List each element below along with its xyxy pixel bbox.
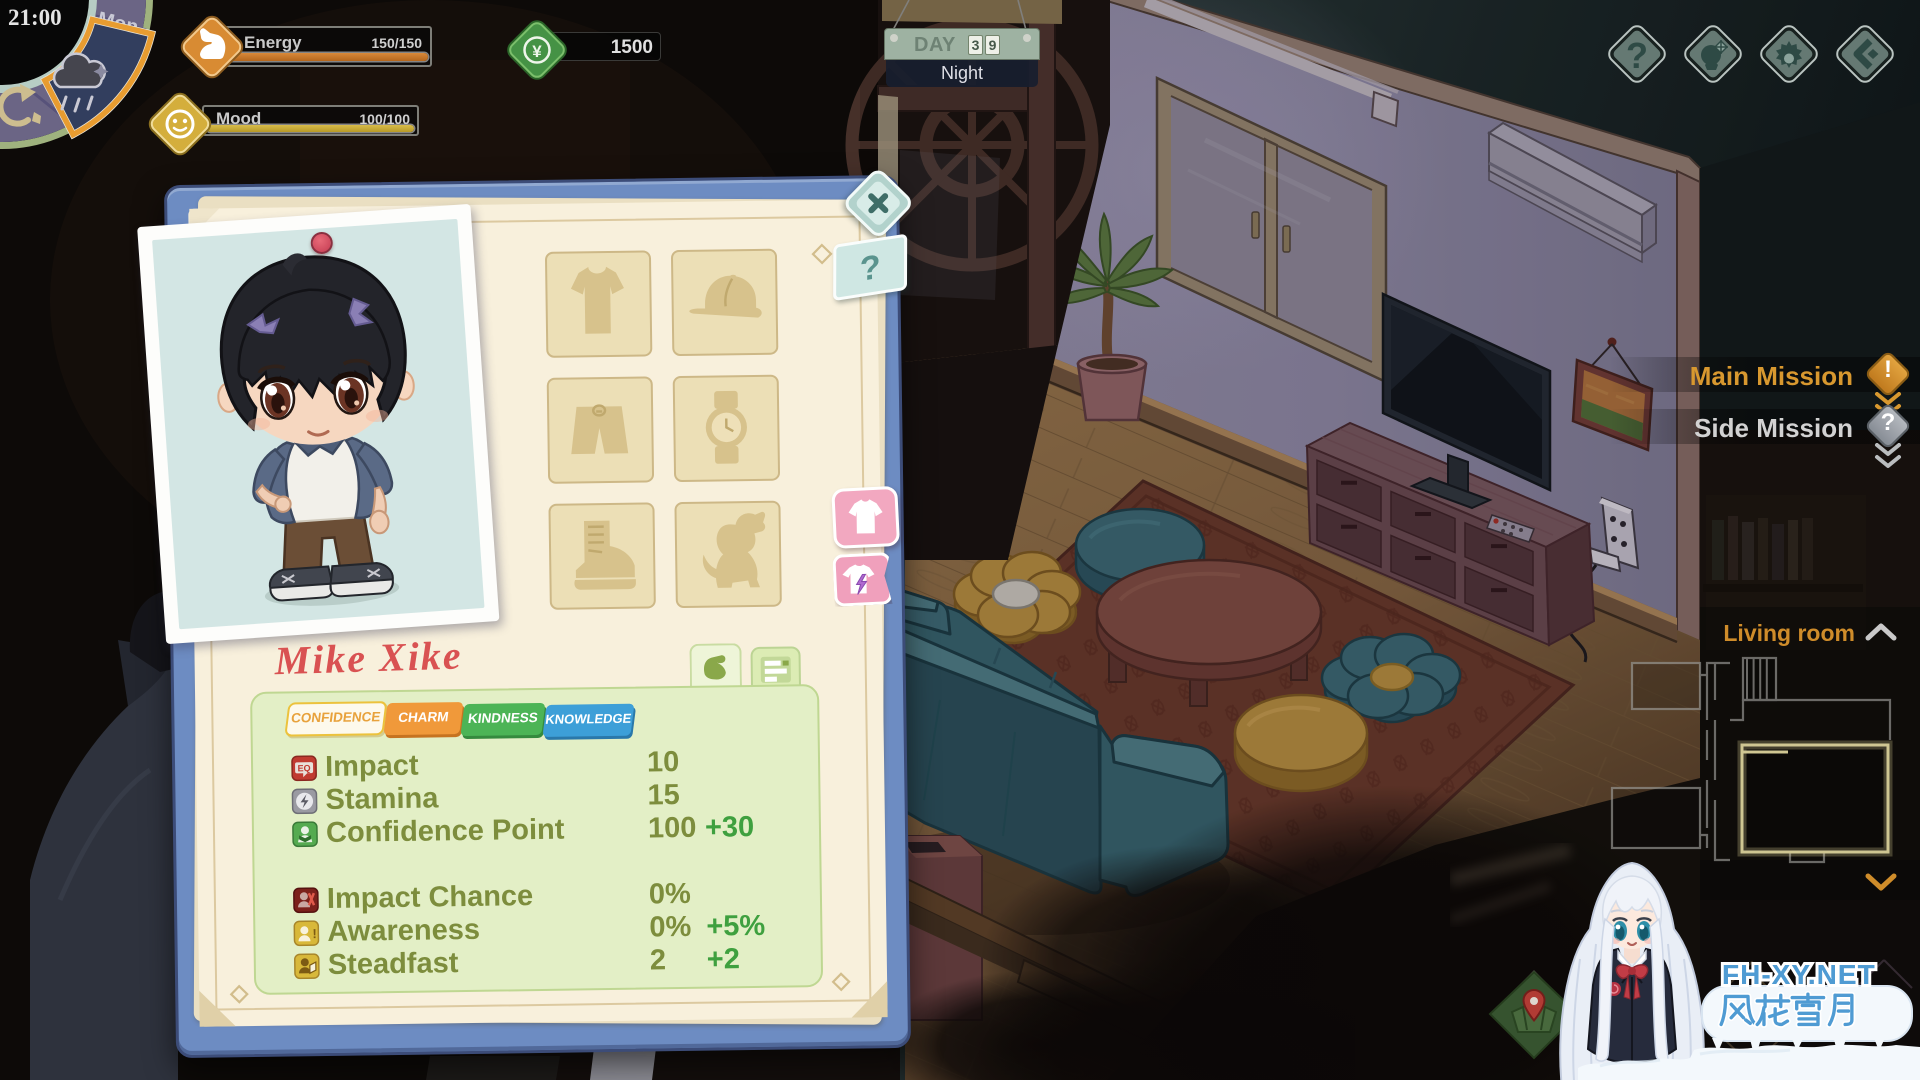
svg-text:FH-XY.NET: FH-XY.NET [1722, 959, 1876, 990]
svg-text:¥: ¥ [532, 42, 542, 61]
svg-text:!: ! [312, 926, 317, 941]
svg-text:21:00: 21:00 [8, 5, 62, 30]
svg-text:EQ: EQ [298, 763, 311, 773]
svg-text:?: ? [1626, 35, 1648, 74]
